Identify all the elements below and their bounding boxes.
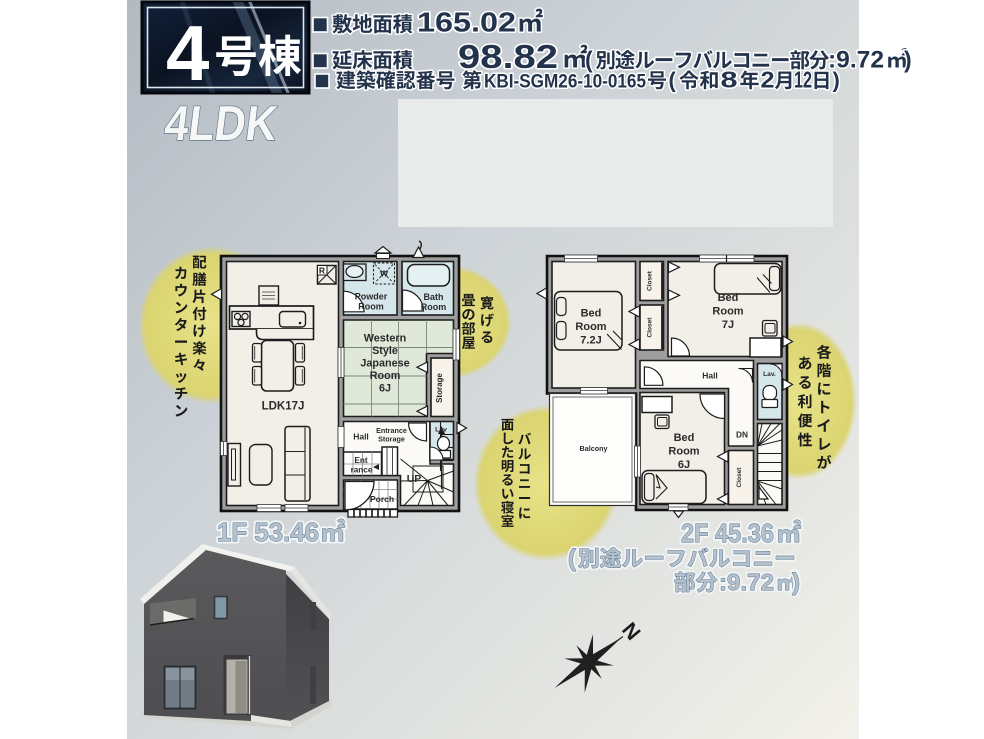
svg-text:2F 45.36: 2F 45.36: [681, 518, 774, 548]
svg-text:rance: rance: [351, 466, 373, 475]
svg-text:(: (: [568, 545, 576, 572]
svg-text:Balcony: Balcony: [580, 444, 608, 453]
svg-text:Closet: Closet: [647, 270, 654, 291]
svg-text:Bed: Bed: [581, 308, 602, 320]
svg-text:Bed: Bed: [718, 292, 739, 304]
svg-text:8: 8: [721, 67, 738, 93]
svg-text:Powder: Powder: [355, 292, 388, 302]
svg-text:Porch: Porch: [370, 494, 394, 504]
svg-text:(: (: [669, 68, 677, 93]
svg-text:Hall: Hall: [702, 371, 718, 381]
svg-text:W: W: [380, 269, 389, 279]
svg-text:Lav.: Lav.: [763, 371, 776, 378]
svg-text:165.02: 165.02: [417, 7, 516, 38]
svg-text:Room: Room: [668, 446, 699, 458]
svg-text:Lav: Lav: [435, 427, 447, 434]
svg-text:Western: Western: [364, 333, 406, 345]
svg-text:(: (: [585, 47, 593, 73]
svg-text:Closet: Closet: [647, 317, 654, 338]
svg-text:KBI-SGM26-10-0165: KBI-SGM26-10-0165: [484, 71, 646, 93]
svg-text:Storage: Storage: [435, 373, 444, 403]
svg-text:Bath: Bath: [424, 292, 444, 302]
svg-text:UP: UP: [407, 473, 422, 485]
svg-text:12: 12: [794, 67, 812, 93]
svg-text:R: R: [319, 266, 325, 276]
svg-text:7.2J: 7.2J: [580, 335, 601, 347]
svg-text::9.72: :9.72: [719, 569, 774, 595]
svg-text:6J: 6J: [379, 383, 391, 395]
svg-text:Room: Room: [575, 321, 606, 333]
svg-text:Room: Room: [712, 306, 743, 318]
svg-text:7J: 7J: [722, 319, 734, 331]
svg-text:): ): [904, 47, 912, 73]
svg-text:Room: Room: [421, 302, 447, 312]
svg-text:Hall: Hall: [353, 432, 369, 442]
svg-text:LDK17J: LDK17J: [262, 401, 305, 413]
svg-text:DN: DN: [736, 430, 748, 440]
svg-text:Ent: Ent: [354, 456, 367, 465]
svg-text:4LDK: 4LDK: [162, 96, 281, 151]
svg-text:6J: 6J: [678, 459, 690, 471]
svg-text:Closet: Closet: [736, 467, 743, 488]
svg-text:Style: Style: [372, 345, 398, 357]
svg-text:Room: Room: [370, 370, 401, 382]
svg-text:Japanese: Japanese: [360, 358, 409, 370]
svg-text:): ): [833, 68, 840, 93]
svg-text:Room: Room: [358, 302, 384, 312]
svg-text:Bed: Bed: [674, 432, 695, 444]
svg-text:4: 4: [166, 9, 209, 97]
svg-text:2: 2: [761, 67, 775, 93]
svg-text:1F 53.46: 1F 53.46: [217, 517, 319, 547]
svg-text:Storage: Storage: [378, 435, 405, 444]
svg-text:): ): [792, 569, 800, 596]
